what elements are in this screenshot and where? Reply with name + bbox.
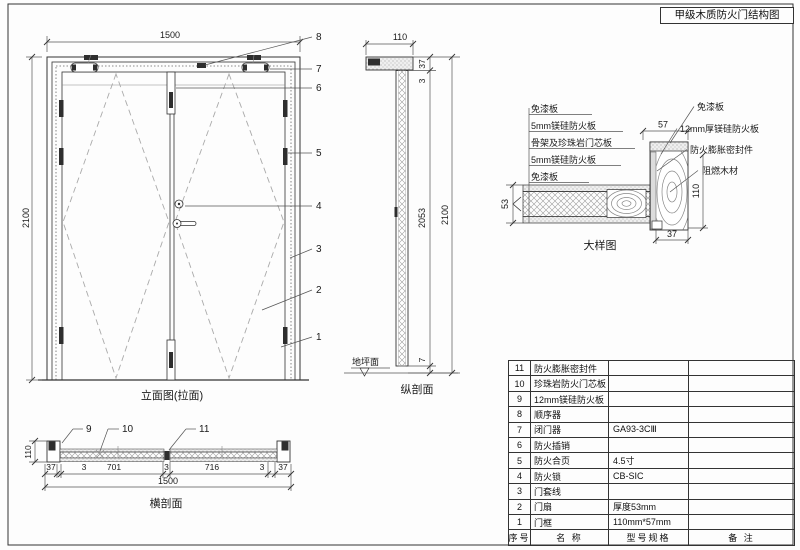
table-cell xyxy=(689,515,795,530)
svg-text:1500: 1500 xyxy=(160,30,180,40)
hsection-label: 横剖面 xyxy=(150,496,183,510)
detail-label: 大样图 xyxy=(584,238,617,252)
part-label-wood: 阻燃木材 xyxy=(702,165,738,176)
vsection-width-dim: 110 xyxy=(363,32,416,55)
layer-label-face-bot: 免漆板 xyxy=(531,171,558,182)
svg-text:57: 57 xyxy=(658,120,668,130)
drawing-sheet: 1500 2100 8 7 6 5 4 3 2 1 xyxy=(0,0,800,550)
table-cell: 2 xyxy=(509,500,531,515)
right-leaf-swing-lines xyxy=(175,74,284,378)
table-cell: 防火插销 xyxy=(531,438,609,453)
table-cell: 4.5寸 xyxy=(609,453,689,468)
fire-lock xyxy=(173,200,196,228)
ground-symbol xyxy=(360,368,369,376)
table-cell xyxy=(689,423,795,438)
table-header-remark: 备 注 xyxy=(689,530,795,545)
table-cell: 顺序器 xyxy=(531,407,609,422)
vsection-label: 纵剖面 xyxy=(401,382,434,396)
table-cell: 防火膨胀密封件 xyxy=(531,361,609,376)
svg-text:2100: 2100 xyxy=(440,205,450,225)
layer-label-core: 骨架及珍珠岩门芯板 xyxy=(531,137,612,148)
table-cell: GA93-3CⅢ xyxy=(609,423,689,438)
table-cell xyxy=(689,407,795,422)
door-closer-right xyxy=(242,55,269,72)
table-cell: 7 xyxy=(509,423,531,438)
table-cell xyxy=(689,438,795,453)
table-cell: 11 xyxy=(509,361,531,376)
table-cell xyxy=(609,484,689,499)
vertical-section-view: 地坪面 110 37 3 2053 7 xyxy=(344,32,460,396)
svg-text:3: 3 xyxy=(417,78,427,83)
table-cell: 防火锁 xyxy=(531,469,609,484)
table-cell: CB-SIC xyxy=(609,469,689,484)
svg-text:110: 110 xyxy=(393,32,407,42)
detail-view: 免漆板 5mm镁硅防火板 骨架及珍珠岩门芯板 5mm镁硅防火板 免漆板 xyxy=(500,101,759,252)
flush-bolt-top xyxy=(167,72,175,114)
callout-9: 9 xyxy=(86,424,92,435)
table-cell: 10 xyxy=(509,376,531,391)
vsection-height-dims: 37 3 2053 7 2100 xyxy=(408,54,460,376)
table-cell xyxy=(689,500,795,515)
table-cell: 110mm*57mm xyxy=(609,515,689,530)
horizontal-section-view: 9 10 11 110 xyxy=(23,424,294,510)
svg-text:37: 37 xyxy=(417,59,427,69)
svg-text:37: 37 xyxy=(278,462,288,472)
svg-text:37: 37 xyxy=(46,462,56,472)
elevation-width-dim: 1500 xyxy=(44,30,303,52)
drawing-title: 甲级木质防火门结构图 xyxy=(660,7,794,24)
flush-bolt-bottom xyxy=(167,340,175,380)
table-cell xyxy=(609,361,689,376)
callout-6: 6 xyxy=(316,83,322,94)
svg-text:110: 110 xyxy=(691,184,701,198)
callout-3: 3 xyxy=(316,244,322,255)
layer-label-face-top: 免漆板 xyxy=(531,103,558,114)
table-header-no: 序号 xyxy=(509,530,531,545)
callout-5: 5 xyxy=(316,148,322,159)
table-cell: 4 xyxy=(509,469,531,484)
parts-table: 11防火膨胀密封件 10珍珠岩防火门芯板 912mm镁硅防火板 8顺序器 7闭门… xyxy=(508,360,795,546)
door-closer-left xyxy=(71,55,98,72)
table-cell: 门框 xyxy=(531,515,609,530)
table-cell: 9 xyxy=(509,392,531,407)
part-label-seal: 防火膨胀密封件 xyxy=(690,144,753,155)
callout-10: 10 xyxy=(122,424,134,435)
table-cell xyxy=(689,469,795,484)
table-cell: 防火合页 xyxy=(531,453,609,468)
layer-label-board-top: 5mm镁硅防火板 xyxy=(531,120,596,131)
table-cell xyxy=(689,361,795,376)
svg-text:7: 7 xyxy=(417,357,427,362)
table-cell: 8 xyxy=(509,407,531,422)
callout-11: 11 xyxy=(199,424,210,435)
table-cell: 5 xyxy=(509,453,531,468)
table-cell: 闭门器 xyxy=(531,423,609,438)
callout-8: 8 xyxy=(316,32,322,43)
table-cell xyxy=(689,392,795,407)
svg-text:2053: 2053 xyxy=(417,208,427,228)
table-cell xyxy=(609,376,689,391)
left-leaf-swing-lines xyxy=(63,74,169,378)
door-sequencer xyxy=(197,63,206,68)
expansion-seal-strip xyxy=(651,152,657,229)
table-header-name: 名 称 xyxy=(531,530,609,545)
callout-1: 1 xyxy=(316,332,322,343)
svg-text:3: 3 xyxy=(164,462,169,472)
hsection-callouts: 9 10 11 xyxy=(62,424,210,451)
callout-7: 7 xyxy=(316,64,322,75)
table-header-spec: 型号规格 xyxy=(609,530,689,545)
table-cell: 门套线 xyxy=(531,484,609,499)
elevation-view: 1500 2100 8 7 6 5 4 3 2 1 xyxy=(21,30,322,402)
elevation-label: 立面图(拉面) xyxy=(141,388,203,402)
table-cell: 3 xyxy=(509,484,531,499)
callout-2: 2 xyxy=(316,285,322,296)
svg-text:37: 37 xyxy=(667,229,677,239)
svg-text:2100: 2100 xyxy=(21,208,31,228)
svg-text:3: 3 xyxy=(82,462,87,472)
leaf-edge-wood xyxy=(607,190,647,218)
svg-text:716: 716 xyxy=(205,462,219,472)
elevation-height-dim: 2100 xyxy=(21,54,42,383)
svg-text:1500: 1500 xyxy=(158,476,178,486)
layer-label-board-bot: 5mm镁硅防火板 xyxy=(531,154,596,165)
table-cell: 6 xyxy=(509,438,531,453)
svg-text:53: 53 xyxy=(500,199,510,209)
svg-text:110: 110 xyxy=(23,445,33,459)
table-cell xyxy=(609,392,689,407)
part-label-12mm-board: 12mm厚镁硅防火板 xyxy=(680,123,759,134)
svg-text:701: 701 xyxy=(107,462,121,472)
table-cell: 1 xyxy=(509,515,531,530)
part-label-face-board: 免漆板 xyxy=(697,101,724,112)
table-cell: 12mm镁硅防火板 xyxy=(531,392,609,407)
table-cell: 珍珠岩防火门芯板 xyxy=(531,376,609,391)
hsection-chain-dims: 37 3 701 3 716 3 37 1500 xyxy=(42,462,294,491)
svg-text:3: 3 xyxy=(260,462,265,472)
floor-label: 地坪面 xyxy=(352,356,379,367)
table-cell: 厚度53mm xyxy=(609,500,689,515)
callout-4: 4 xyxy=(316,201,322,212)
table-cell xyxy=(609,438,689,453)
table-cell xyxy=(609,407,689,422)
table-cell xyxy=(689,453,795,468)
table-cell xyxy=(689,376,795,391)
detail-frame-section xyxy=(650,142,691,238)
hsection-depth-dim: 110 xyxy=(23,438,47,465)
table-cell xyxy=(689,484,795,499)
table-cell: 门扇 xyxy=(531,500,609,515)
meeting-stile-seal xyxy=(165,451,170,460)
